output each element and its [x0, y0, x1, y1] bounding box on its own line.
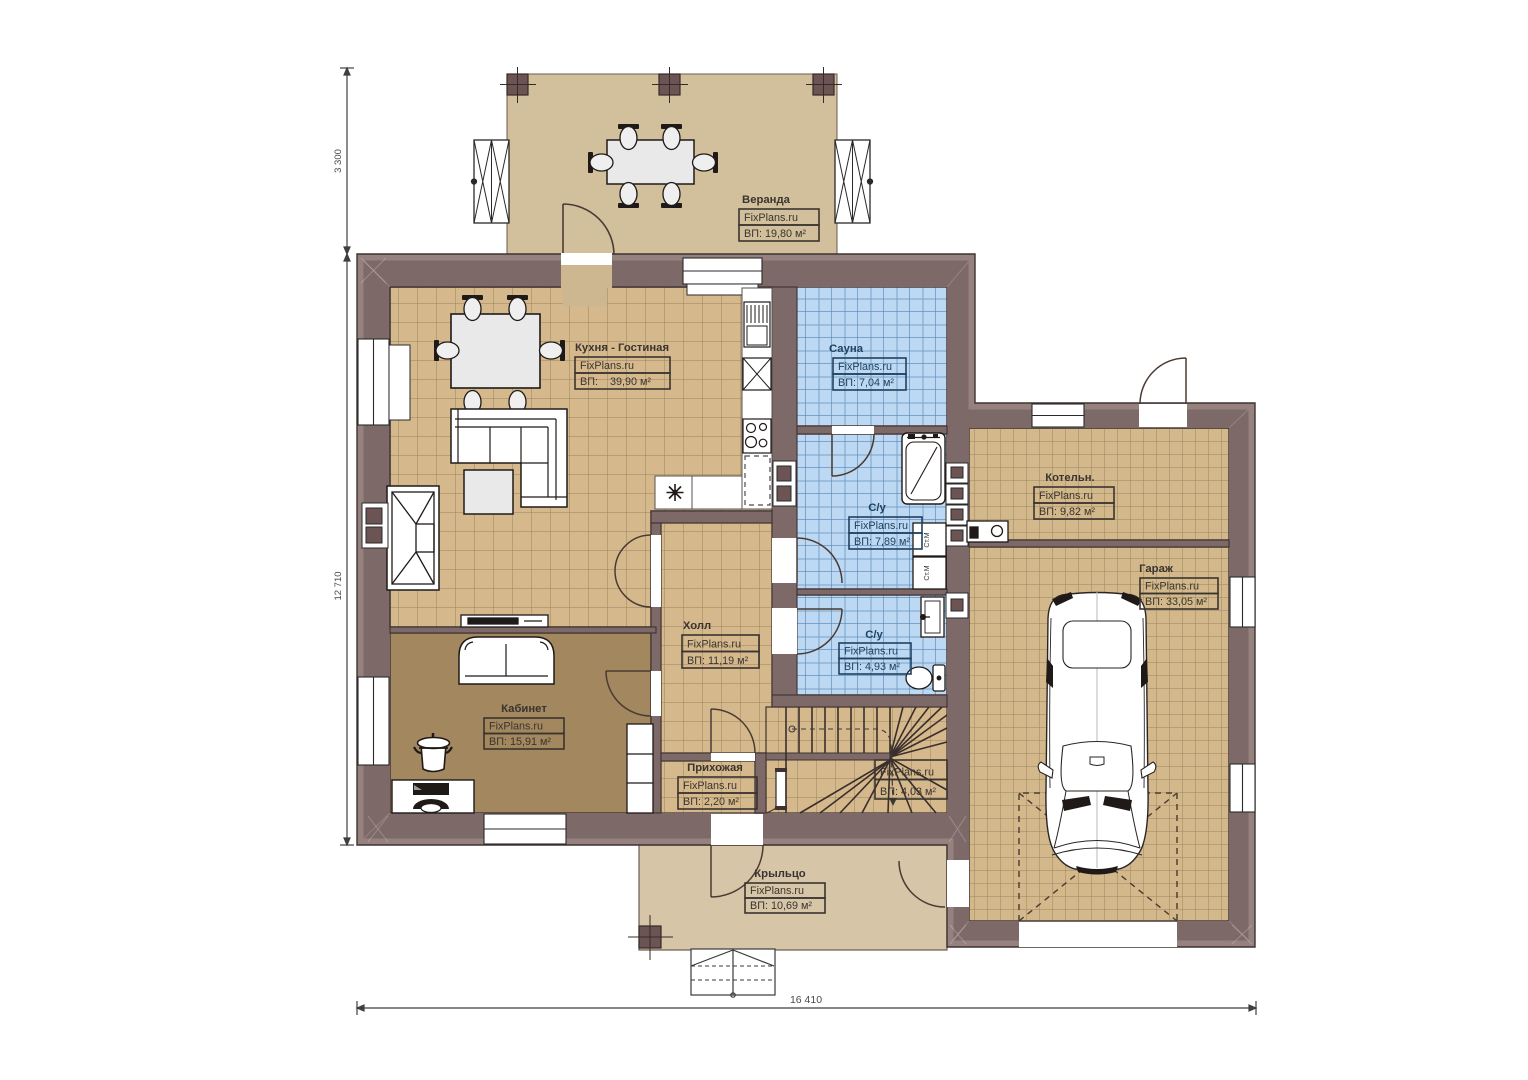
- svg-text:Крыльцо: Крыльцо: [754, 868, 806, 880]
- svg-text:FixPlans.ru: FixPlans.ru: [489, 721, 543, 733]
- svg-text:Котельн.: Котельн.: [1045, 472, 1094, 484]
- svg-text:Ст.М: Ст.М: [924, 532, 931, 547]
- svg-text:FixPlans.ru: FixPlans.ru: [683, 780, 737, 792]
- svg-text:16 410: 16 410: [790, 994, 822, 1006]
- svg-text:FixPlans.ru: FixPlans.ru: [744, 212, 798, 224]
- svg-text:ВП: 7,89 м²: ВП: 7,89 м²: [854, 536, 910, 548]
- svg-text:Ст.М: Ст.М: [924, 565, 931, 580]
- svg-text:FixPlans.ru: FixPlans.ru: [580, 360, 634, 372]
- svg-text:Холл: Холл: [683, 620, 711, 632]
- svg-text:ВП: 33,05 м²: ВП: 33,05 м²: [1145, 596, 1207, 608]
- svg-text:FixPlans.ru: FixPlans.ru: [687, 639, 741, 651]
- svg-text:12 710: 12 710: [333, 571, 344, 600]
- svg-text:ВП: 7,04 м²: ВП: 7,04 м²: [838, 377, 894, 389]
- svg-text:ВП: 39,90 м²: ВП: 39,90 м²: [580, 376, 651, 388]
- svg-text:ВП: 9,82 м²: ВП: 9,82 м²: [1039, 506, 1095, 518]
- svg-text:3 300: 3 300: [333, 149, 344, 173]
- svg-text:ВП: 19,80 м²: ВП: 19,80 м²: [744, 228, 806, 240]
- svg-text:ВП: 2,20 м²: ВП: 2,20 м²: [683, 796, 739, 808]
- svg-text:FixPlans.ru: FixPlans.ru: [838, 361, 892, 373]
- svg-text:Гараж: Гараж: [1139, 563, 1174, 575]
- svg-text:С/у: С/у: [865, 629, 883, 641]
- svg-text:ВП: 11,19 м²: ВП: 11,19 м²: [687, 655, 749, 667]
- svg-text:ВП: 4,03 м²: ВП: 4,03 м²: [880, 786, 936, 798]
- svg-text:Прихожая: Прихожая: [687, 762, 743, 774]
- svg-text:FixPlans.ru: FixPlans.ru: [1145, 581, 1199, 593]
- svg-text:ВП: 10,69 м²: ВП: 10,69 м²: [750, 900, 812, 912]
- svg-text:Кухня - Гостиная: Кухня - Гостиная: [575, 342, 669, 354]
- svg-text:FixPlans.ru: FixPlans.ru: [1039, 490, 1093, 502]
- svg-text:Веранда: Веранда: [742, 194, 791, 206]
- svg-text:Сауна: Сауна: [829, 343, 864, 355]
- svg-text:ВП: 4,93 м²: ВП: 4,93 м²: [844, 661, 900, 673]
- svg-text:FixPlans.ru: FixPlans.ru: [880, 767, 934, 779]
- svg-text:FixPlans.ru: FixPlans.ru: [750, 885, 804, 897]
- svg-text:FixPlans.ru: FixPlans.ru: [844, 646, 898, 658]
- svg-text:С/у: С/у: [868, 502, 886, 514]
- svg-text:ВП: 15,91 м²: ВП: 15,91 м²: [489, 736, 551, 748]
- svg-text:Кабинет: Кабинет: [501, 703, 547, 715]
- svg-text:FixPlans.ru: FixPlans.ru: [854, 520, 908, 532]
